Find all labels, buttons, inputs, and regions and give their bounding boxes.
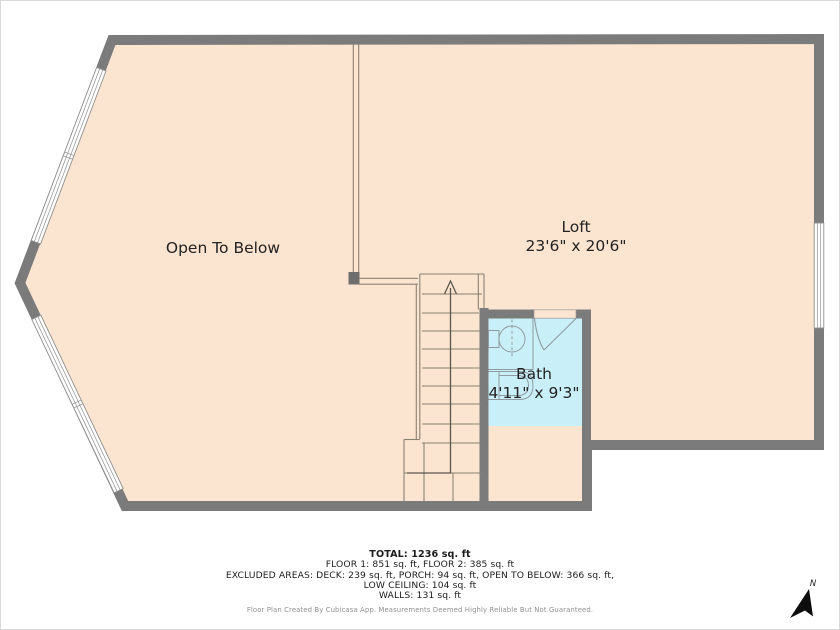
bath-dimensions: 4'11" x 9'3" bbox=[488, 384, 579, 402]
loft-label: Loft bbox=[561, 218, 590, 236]
measurement-summary: TOTAL: 1236 sq. ft FLOOR 1: 851 sq. ft, … bbox=[1, 550, 839, 601]
creator-credit: Floor Plan Created By Cubicasa App. Meas… bbox=[1, 606, 839, 614]
floor-plan-canvas: Open To Below Loft 23'6" x 20'6" Bath 4'… bbox=[1, 1, 840, 630]
floor-plan-page: Open To Below Loft 23'6" x 20'6" Bath 4'… bbox=[0, 0, 840, 630]
bath-label: Bath bbox=[516, 365, 552, 383]
summary-walls: WALLS: 131 sq. ft bbox=[1, 591, 839, 601]
loft-dimensions: 23'6" x 20'6" bbox=[526, 237, 627, 255]
window-right-wall bbox=[814, 223, 824, 328]
open-to-below-label: Open To Below bbox=[166, 239, 281, 257]
